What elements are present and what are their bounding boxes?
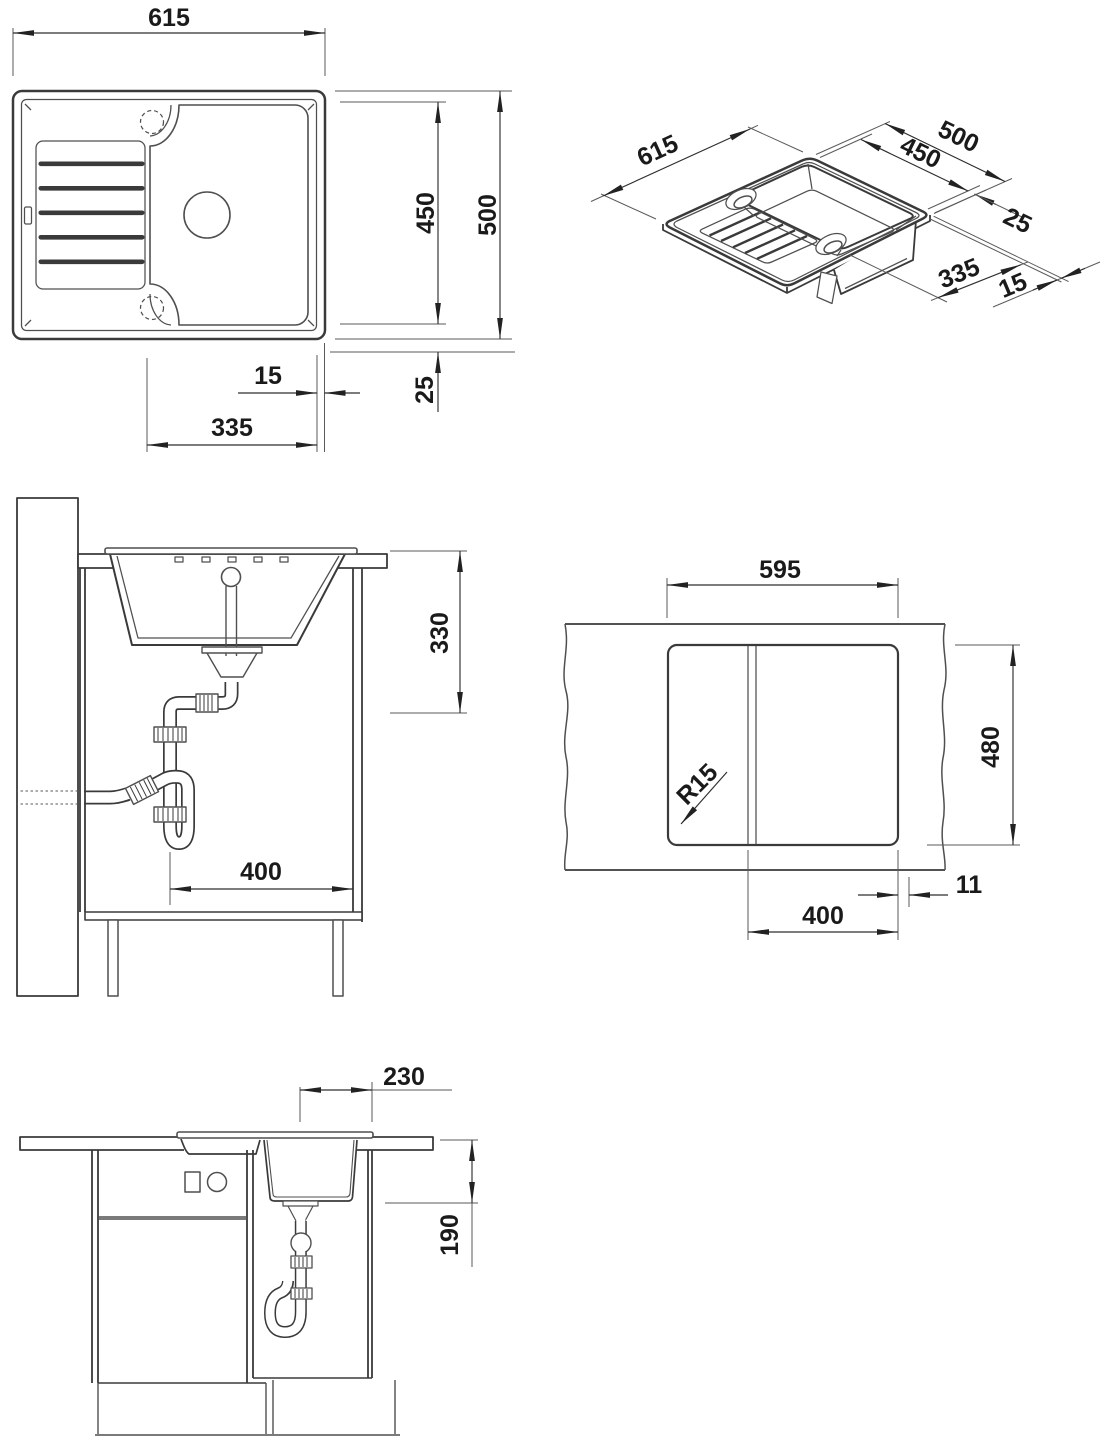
drawer-bottom-line	[98, 1217, 247, 1219]
dim-text-bowl-width: 335	[211, 414, 253, 442]
trap-pipework	[270, 1219, 311, 1332]
drain-funnel	[288, 1206, 313, 1221]
technical-drawing-sheet: 615 450 500 25 15 335 615	[0, 0, 1104, 1440]
pipe-nut	[291, 1256, 312, 1268]
dim-text-width: 615	[148, 4, 190, 32]
top-view-drawing: 615 450 500 25 15 335	[0, 0, 552, 460]
bowl-outline	[150, 105, 308, 325]
witness-line	[934, 190, 986, 214]
dim-text-bowl-depth: 190	[436, 1214, 464, 1256]
dim-text-clearance: 330	[426, 612, 454, 654]
dim-text-bowl-offset: 230	[383, 1063, 425, 1091]
cabinet-bottom	[85, 912, 362, 920]
cabinet-leg	[108, 920, 118, 996]
dim-text-cutout-width: 595	[759, 556, 801, 584]
isometric-view-drawing: 615 500 450 25 335 15	[552, 0, 1104, 460]
witness-lines	[927, 645, 1020, 845]
dim-line-rim-right	[1033, 280, 1057, 290]
witness-lines	[317, 343, 325, 452]
drain-funnel	[207, 653, 257, 677]
dim-text-drain-line: 400	[802, 902, 844, 930]
drain-flange	[283, 1201, 318, 1206]
dim-text-cutout-depth: 480	[977, 726, 1005, 768]
dim-text-drain-offset: 400	[240, 858, 282, 886]
wall	[17, 498, 78, 996]
drainboard-rib	[39, 162, 145, 167]
sink-rim	[177, 1132, 373, 1138]
dim-line-width	[603, 129, 750, 196]
drainboard-rib	[39, 186, 145, 191]
drainboard-rib	[39, 260, 145, 265]
appliance-symbol-circle	[208, 1173, 227, 1192]
pipe-nut	[154, 807, 186, 822]
dim-text-bowl-width: 335	[934, 253, 983, 294]
break-line-right	[942, 624, 946, 870]
cutout-outline	[668, 645, 898, 845]
dim-text-width: 615	[633, 129, 683, 172]
drainboard-rib	[39, 235, 145, 240]
pipe-nut	[291, 1288, 312, 1299]
break-line-left	[564, 624, 568, 870]
dim-text-edge-offset: 25	[999, 202, 1036, 239]
dim-line-rim-right	[1061, 268, 1085, 278]
plinth	[95, 1380, 400, 1435]
cutout-gap	[184, 1138, 356, 1151]
witness-lines	[13, 28, 325, 76]
dim-text-edge-gap: 11	[956, 871, 983, 899]
front-section-drawing: 230 190	[0, 1040, 552, 1440]
witness-lines	[300, 1082, 372, 1122]
pipe-nut	[196, 694, 218, 712]
pipe-nut	[154, 727, 186, 742]
dim-text-edge-offset: 25	[411, 376, 439, 404]
cabinet-bottoms	[98, 1378, 372, 1383]
cabinet-leg	[333, 920, 343, 996]
drain-flange	[202, 647, 262, 653]
appliance-symbol-square	[185, 1172, 200, 1192]
dim-text-depth-inner: 450	[412, 192, 440, 234]
witness-lines	[667, 578, 898, 618]
drain-boss	[817, 272, 837, 304]
overflow-slot	[25, 207, 32, 224]
dim-text-depth-overall: 500	[474, 194, 502, 236]
cutout-plan-drawing: 595 480 R15 400 11	[552, 460, 1104, 1040]
side-section-drawing: 330 400	[0, 460, 552, 1040]
drainboard-rib	[39, 211, 145, 216]
dim-text-rim-right: 15	[254, 362, 282, 390]
sink-rim	[105, 548, 357, 554]
cabinet-sides	[92, 1150, 372, 1383]
overflow-inlet	[222, 568, 241, 587]
